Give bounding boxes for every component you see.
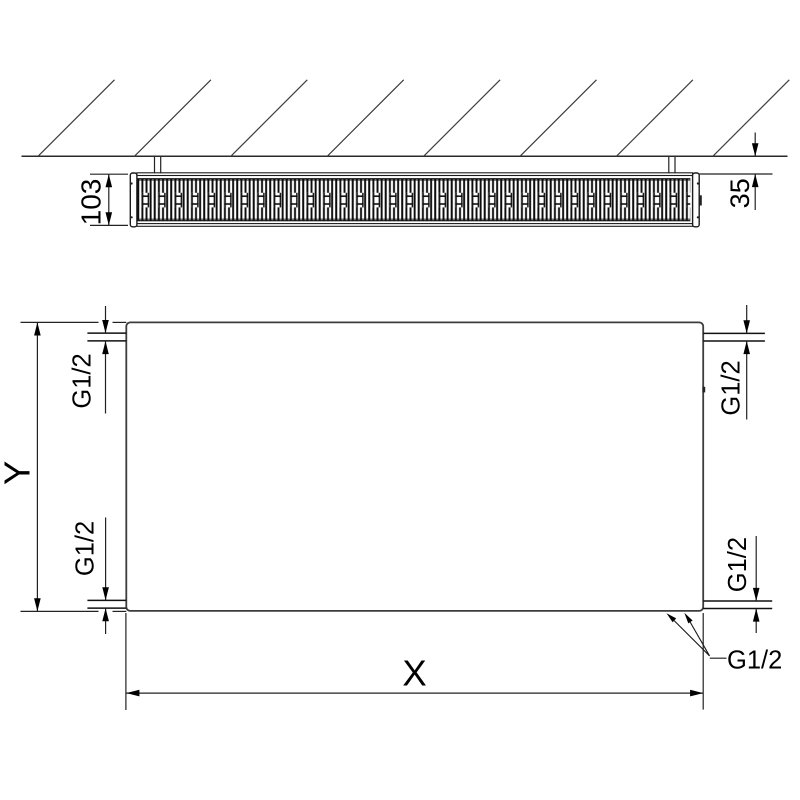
svg-text:G1/2: G1/2	[69, 353, 97, 408]
svg-text:X: X	[402, 653, 426, 694]
svg-text:G1/2: G1/2	[724, 537, 752, 592]
svg-text:G1/2: G1/2	[727, 647, 782, 675]
svg-text:Y: Y	[0, 461, 38, 485]
svg-text:103: 103	[75, 179, 106, 226]
svg-text:G1/2: G1/2	[718, 360, 746, 415]
svg-text:G1/2: G1/2	[72, 521, 100, 576]
svg-text:35: 35	[725, 178, 755, 208]
